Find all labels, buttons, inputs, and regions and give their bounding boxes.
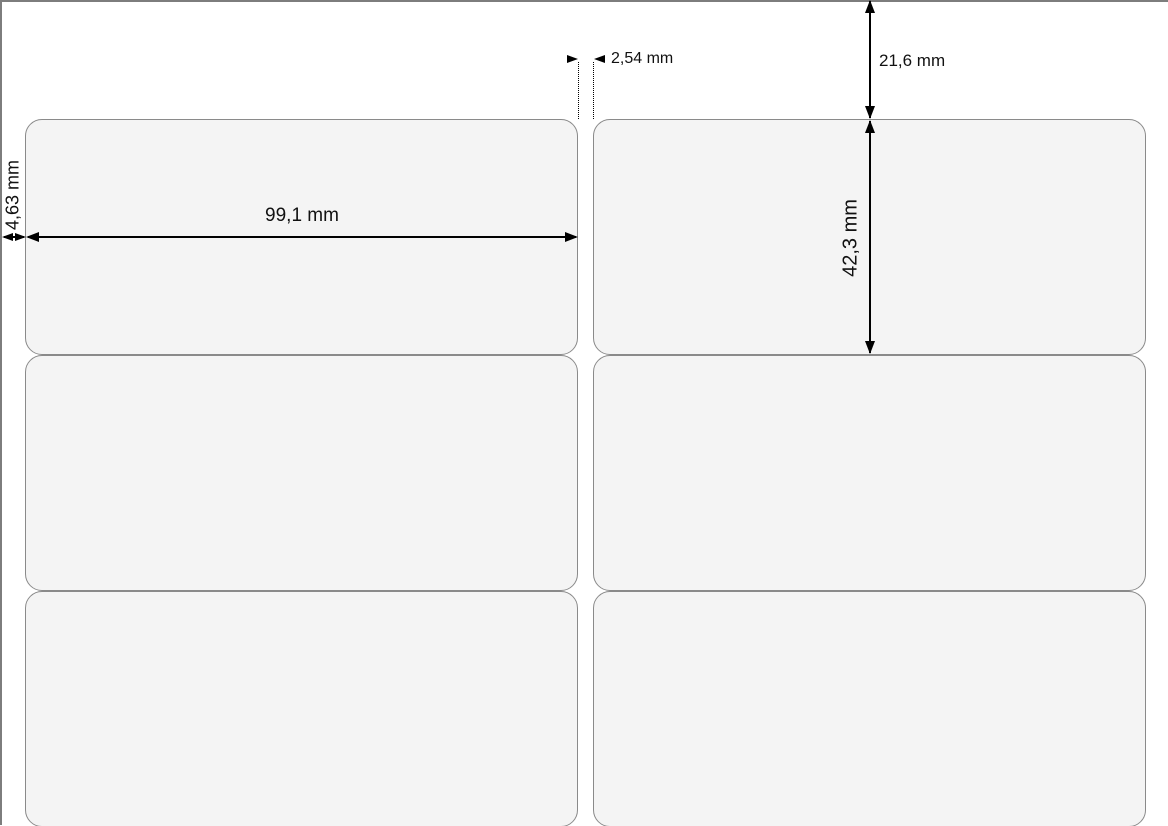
- label-cell: [593, 355, 1146, 591]
- extension-line-right: [593, 62, 594, 119]
- arrowhead-right-icon: [567, 55, 578, 63]
- arrowhead-right-icon: [15, 233, 26, 241]
- label-cell: [25, 355, 578, 591]
- label-cell: [25, 591, 578, 826]
- height-arrow-shaft: [869, 121, 871, 353]
- arrowhead-down-icon: [865, 106, 875, 119]
- column-gap-value: 2,54 mm: [611, 50, 673, 68]
- arrowhead-left-icon: [26, 232, 39, 242]
- label-sheet-diagram: 99,1 mm 4,63 mm 21,6 mm 42,3 mm 2,54 mm: [0, 0, 1168, 826]
- sheet-left-edge: [0, 0, 2, 825]
- arrowhead-left-icon: [2, 233, 13, 241]
- arrowhead-up-icon: [865, 120, 875, 133]
- label-height-value: 42,3 mm: [840, 199, 863, 277]
- arrowhead-up-icon: [865, 0, 875, 13]
- label-cell: [593, 591, 1146, 826]
- label-width-value: 99,1 mm: [152, 205, 452, 227]
- width-arrow-shaft: [28, 236, 576, 238]
- sheet-top-edge: [0, 0, 1168, 2]
- extension-line-left: [578, 62, 579, 119]
- arrowhead-right-icon: [565, 232, 578, 242]
- top-margin-arrow-shaft: [869, 1, 871, 118]
- arrowhead-down-icon: [865, 341, 875, 354]
- arrowhead-left-icon: [594, 55, 605, 63]
- left-margin-value: 4,63 mm: [3, 160, 24, 230]
- top-margin-value: 21,6 mm: [879, 51, 945, 71]
